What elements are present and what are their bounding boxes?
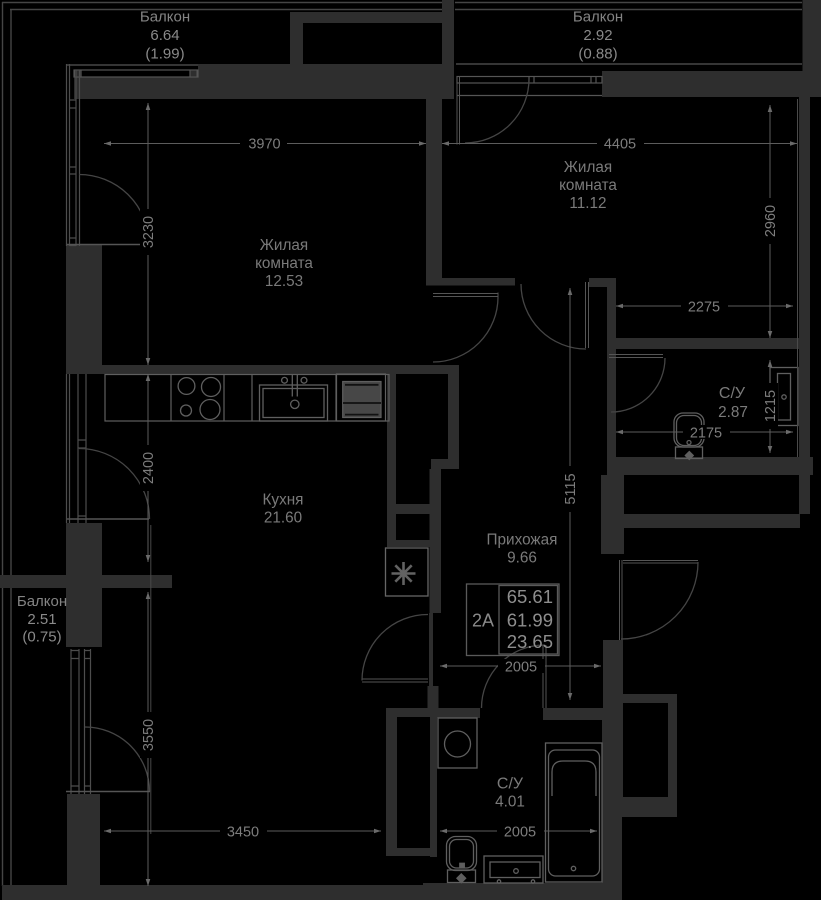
svg-text:12.53: 12.53 bbox=[265, 273, 303, 290]
svg-text:Балкон: Балкон bbox=[17, 593, 67, 610]
svg-text:2175: 2175 bbox=[690, 426, 722, 442]
svg-text:4.01: 4.01 bbox=[495, 794, 525, 811]
svg-text:2А: 2А bbox=[472, 611, 494, 631]
svg-text:2.92: 2.92 bbox=[583, 27, 612, 44]
svg-text:2400: 2400 bbox=[141, 452, 157, 484]
svg-text:65.61: 65.61 bbox=[507, 586, 553, 607]
svg-text:9.66: 9.66 bbox=[507, 550, 537, 567]
svg-text:21.60: 21.60 bbox=[264, 510, 302, 527]
svg-text:2005: 2005 bbox=[505, 660, 537, 676]
svg-text:Жилая: Жилая bbox=[564, 159, 612, 176]
svg-text:(0.75): (0.75) bbox=[22, 629, 61, 646]
svg-text:С/У: С/У bbox=[497, 776, 524, 793]
svg-text:комната: комната bbox=[255, 255, 313, 272]
svg-text:6.64: 6.64 bbox=[150, 27, 179, 44]
svg-text:С/У: С/У bbox=[719, 385, 746, 402]
svg-text:3230: 3230 bbox=[141, 216, 157, 248]
svg-text:2960: 2960 bbox=[763, 205, 779, 237]
svg-text:61.99: 61.99 bbox=[507, 610, 553, 631]
svg-text:2275: 2275 bbox=[688, 300, 720, 316]
svg-text:комната: комната bbox=[559, 177, 617, 194]
svg-text:Балкон: Балкон bbox=[140, 9, 190, 26]
svg-text:2.51: 2.51 bbox=[27, 611, 56, 628]
svg-text:Жилая: Жилая bbox=[260, 237, 308, 254]
svg-text:1215: 1215 bbox=[763, 390, 779, 422]
svg-text:23.65: 23.65 bbox=[507, 631, 553, 652]
svg-text:2.87: 2.87 bbox=[718, 404, 748, 421]
svg-text:Балкон: Балкон bbox=[573, 9, 623, 26]
svg-text:(1.99): (1.99) bbox=[145, 46, 184, 63]
svg-text:(0.88): (0.88) bbox=[578, 46, 617, 63]
svg-text:3450: 3450 bbox=[227, 825, 259, 841]
svg-text:5115: 5115 bbox=[563, 473, 579, 504]
svg-text:4405: 4405 bbox=[604, 137, 636, 153]
svg-text:Прихожая: Прихожая bbox=[487, 532, 558, 549]
svg-text:3970: 3970 bbox=[248, 137, 280, 153]
svg-text:Кухня: Кухня bbox=[263, 492, 304, 509]
svg-text:11.12: 11.12 bbox=[569, 195, 606, 212]
svg-text:2005: 2005 bbox=[504, 825, 536, 841]
svg-text:3550: 3550 bbox=[141, 719, 157, 751]
